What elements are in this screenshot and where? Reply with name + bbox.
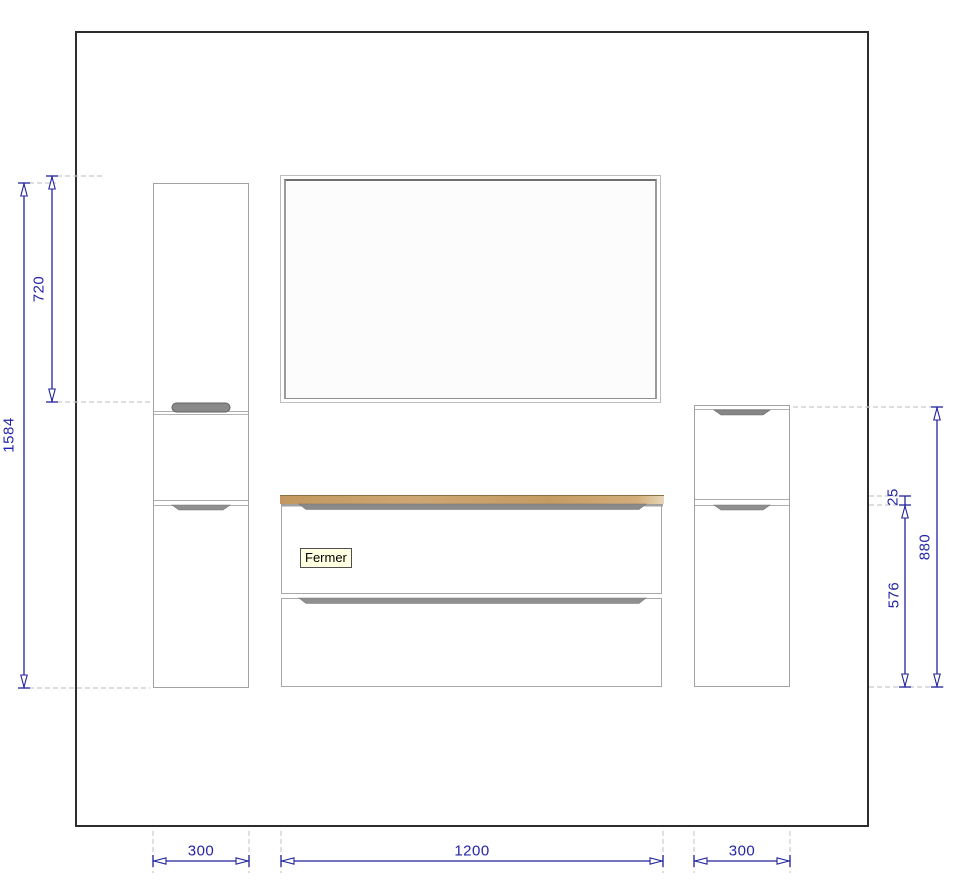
right-column-top-door[interactable] (695, 406, 789, 500)
dim-label-countertop-thickness: 25 (886, 488, 901, 506)
dim-label-left-column-width: 300 (188, 844, 215, 859)
dim-label-left-column-height: 1584 (2, 417, 17, 452)
left-column-bottom-door[interactable] (154, 505, 248, 688)
left-column-cabinet[interactable] (153, 183, 249, 688)
dim-label-vanity-height: 576 (887, 582, 902, 609)
dim-label-right-column-height: 880 (918, 534, 933, 561)
right-column-cabinet[interactable] (694, 405, 790, 687)
dim-label-vanity-width: 1200 (454, 844, 489, 859)
countertop[interactable] (280, 495, 664, 504)
dim-label-mirror-height: 720 (32, 276, 47, 303)
left-column-top-door[interactable] (154, 184, 248, 412)
dim-label-right-column-width: 300 (729, 844, 756, 859)
mirror[interactable] (280, 175, 661, 403)
elevation-drawing-canvas: 1584 720 25 880 576 300 1200 300 Fermer (0, 0, 954, 882)
dim-line-left-column-height (18, 183, 30, 688)
right-column-bottom-door[interactable] (695, 505, 789, 688)
dim-line-mirror-height (46, 176, 58, 402)
tooltip: Fermer (300, 548, 352, 568)
mirror-glass (284, 179, 657, 399)
left-column-middle-door[interactable] (154, 414, 248, 501)
vanity-bottom-drawer[interactable] (281, 598, 662, 687)
